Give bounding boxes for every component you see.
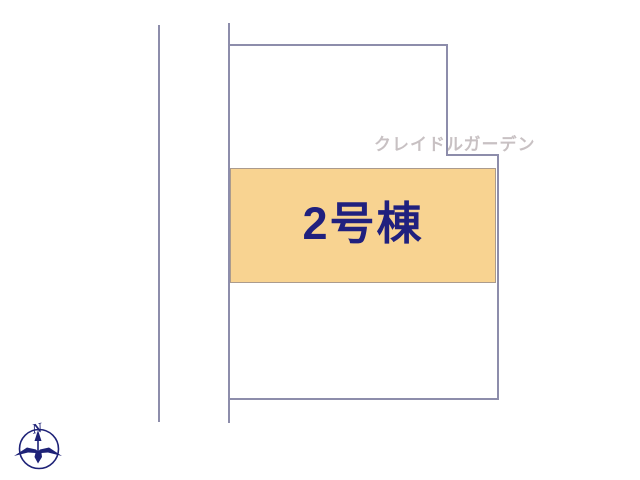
parcel-step-boundary <box>446 154 499 156</box>
site-plan-canvas: クレイドルガーデン 2号棟 N <box>0 0 640 480</box>
parcel-right-boundary <box>497 154 499 400</box>
compass-icon: N <box>12 418 64 472</box>
watermark-text: クレイドルガーデン <box>374 130 536 155</box>
road-boundary-line <box>158 25 160 422</box>
building-2-parcel: 2号棟 <box>230 168 496 283</box>
parcel-upper-right-boundary <box>446 44 448 156</box>
building-2-label: 2号棟 <box>302 201 423 246</box>
parcel-top-boundary <box>228 44 448 46</box>
parcel-bottom-boundary <box>228 398 499 400</box>
